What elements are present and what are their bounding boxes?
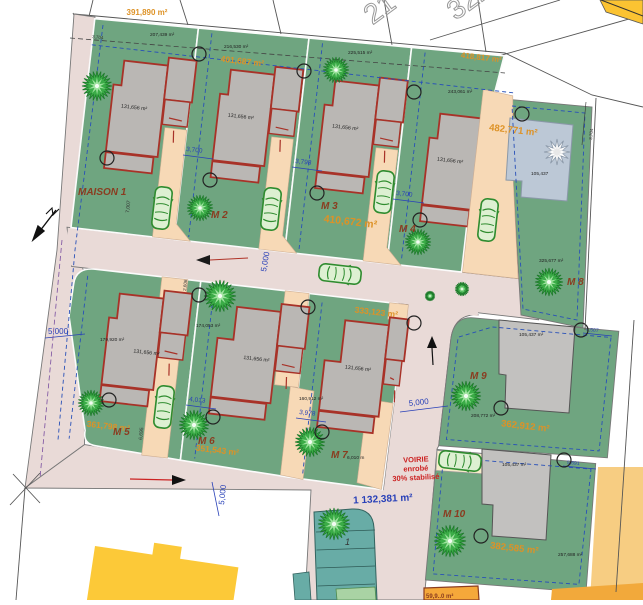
svg-text:208,772 m²: 208,772 m² [471, 413, 496, 419]
svg-text:160,912 m²: 160,912 m² [299, 396, 324, 402]
svg-text:1: 1 [345, 537, 350, 547]
svg-text:225,515 m²: 225,515 m² [348, 50, 373, 56]
svg-text:325,677 m²: 325,677 m² [539, 258, 564, 264]
svg-text:257,688 m²: 257,688 m² [558, 552, 583, 558]
svg-text:105,437 m²: 105,437 m² [519, 332, 544, 338]
svg-text:M 8: M 8 [567, 277, 584, 288]
svg-text:207,439 m²: 207,439 m² [150, 32, 175, 38]
svg-text:5,691: 5,691 [567, 460, 580, 467]
svg-text:105,437 m²: 105,437 m² [502, 462, 527, 468]
svg-text:216,530 m²: 216,530 m² [224, 44, 249, 50]
svg-text:179,920 m²: 179,920 m² [100, 337, 125, 343]
svg-text:M 10: M 10 [443, 509, 466, 520]
svg-text:MAISON 1: MAISON 1 [78, 187, 127, 198]
svg-text:M 7: M 7 [331, 450, 348, 461]
svg-text:105,437: 105,437 [531, 171, 549, 177]
svg-text:M 9: M 9 [470, 371, 487, 382]
svg-text:391,890 m²: 391,890 m² [127, 8, 168, 17]
svg-text:M 2: M 2 [211, 210, 228, 221]
svg-text:6,010 m: 6,010 m [347, 455, 364, 461]
svg-text:243,061 m²: 243,061 m² [448, 89, 473, 95]
svg-text:M 5: M 5 [113, 427, 130, 438]
svg-text:M 6: M 6 [198, 436, 215, 447]
svg-text:59,9..0 m²: 59,9..0 m² [426, 593, 453, 600]
svg-text:5,000: 5,000 [48, 327, 69, 336]
svg-text:M 4: M 4 [399, 224, 416, 235]
svg-text:M 3: M 3 [321, 201, 338, 212]
svg-text:174,053 m²: 174,053 m² [196, 323, 221, 329]
